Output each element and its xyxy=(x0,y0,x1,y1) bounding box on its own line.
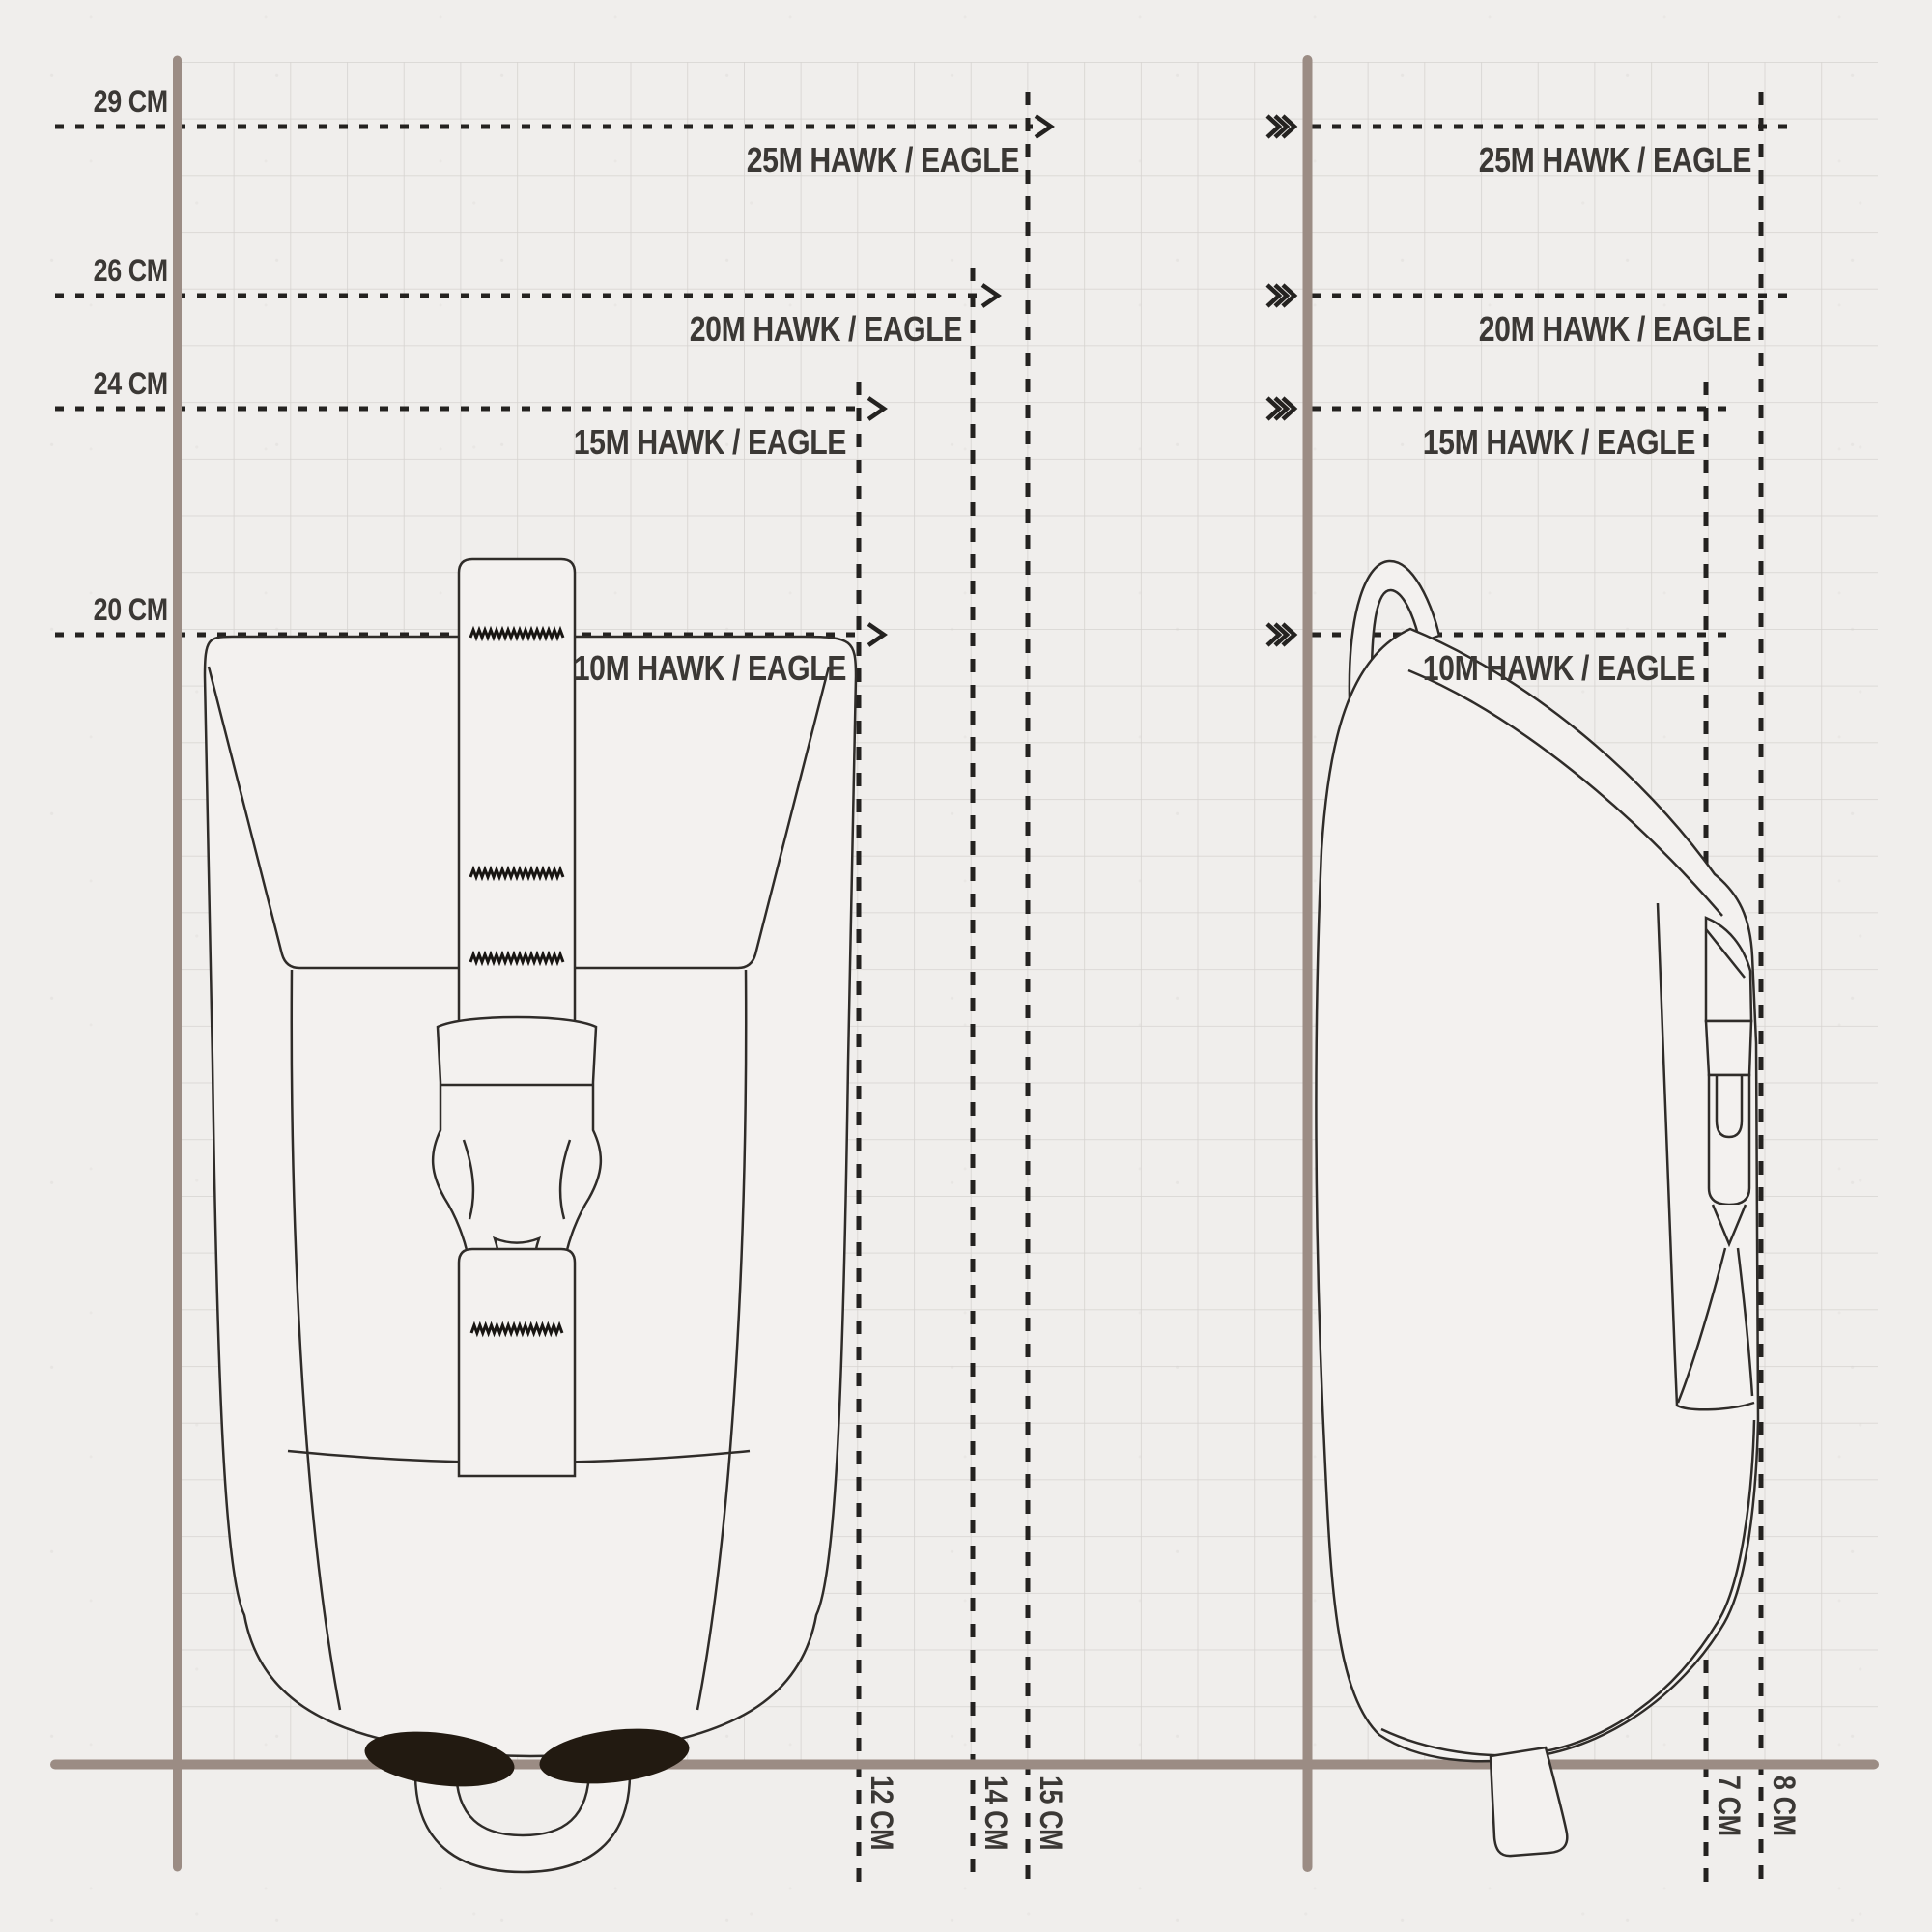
height-label-26cm: 26 CM xyxy=(94,253,168,289)
size-label-side-15m: 15M HAWK / EAGLE xyxy=(1423,422,1695,463)
size-label-front-20m: 20M HAWK / EAGLE xyxy=(690,309,962,350)
depth-label-7cm: 7 CM xyxy=(1711,1776,1747,1836)
size-label-side-20m: 20M HAWK / EAGLE xyxy=(1479,309,1751,350)
size-label-front-15m: 15M HAWK / EAGLE xyxy=(574,422,846,463)
size-label-front-10m: 10M HAWK / EAGLE xyxy=(574,648,846,689)
size-label-front-25m: 25M HAWK / EAGLE xyxy=(747,140,1019,181)
width-label-14cm: 14 CM xyxy=(978,1776,1013,1850)
dimension-diagram: 29 CM 26 CM 24 CM 20 CM 25M HAWK / EAGLE… xyxy=(0,0,1932,1932)
width-label-15cm: 15 CM xyxy=(1033,1776,1068,1850)
front-view-drawing xyxy=(205,559,856,1872)
width-label-12cm: 12 CM xyxy=(864,1776,899,1850)
side-strap-upper xyxy=(1706,1021,1751,1075)
size-label-side-25m: 25M HAWK / EAGLE xyxy=(1479,140,1751,181)
diagram-drawing xyxy=(0,0,1932,1932)
size-label-side-10m: 10M HAWK / EAGLE xyxy=(1423,648,1695,689)
height-label-24cm: 24 CM xyxy=(94,366,168,402)
depth-label-8cm: 8 CM xyxy=(1766,1776,1802,1836)
side-buckle xyxy=(1709,1075,1749,1205)
front-lower-strap xyxy=(459,1249,575,1476)
height-label-29cm: 29 CM xyxy=(94,84,168,120)
height-label-20cm: 20 CM xyxy=(94,592,168,628)
